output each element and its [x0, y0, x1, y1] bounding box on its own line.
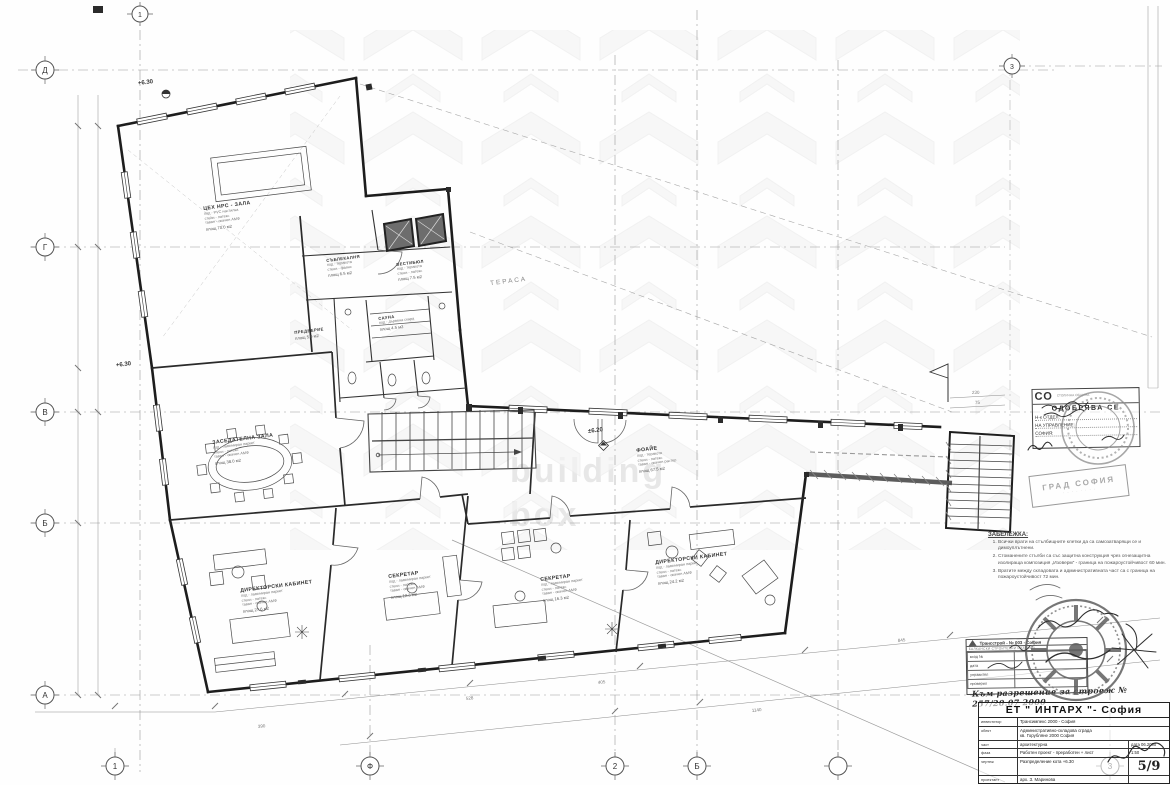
svg-text:Г: Г — [43, 243, 48, 252]
room-label-secretary-1: СЕКРЕТАР под - ламиниран паркет стени - … — [388, 569, 433, 600]
svg-text:845: 845 — [898, 637, 906, 643]
tb-value: арх. З. Маринова — [1018, 776, 1128, 784]
contractor-title: Трансстрой - № 003 - София — [980, 639, 1042, 645]
svg-text:390: 390 — [258, 723, 266, 729]
svg-text:Д: Д — [42, 66, 48, 75]
tb-date: дата 06.2000 — [1128, 741, 1169, 749]
svg-text:75: 75 — [975, 400, 981, 405]
room-label-foyer: ФОАЙЕ под - теракота стени - латекс тава… — [636, 443, 677, 473]
approval-field-1: Н-к ОТДЕЛ: — [1035, 413, 1137, 421]
svg-text:230: 230 — [972, 390, 980, 395]
approval-stamp: СО СТОЛИЧНА ОБЩИНА ОДОБРЯВА СЕ Н-к ОТДЕЛ… — [1031, 387, 1140, 449]
svg-text:3: 3 — [1010, 64, 1014, 71]
svg-text:528: 528 — [466, 695, 474, 701]
room-label-secretary-2: СЕКРЕТАР под - ламиниран паркет стени - … — [540, 572, 585, 603]
tb-value: Административно-складова сграда кв. Гору… — [1018, 727, 1169, 740]
notes-title: ЗАБЕЛЕЖКА: — [988, 532, 1166, 538]
svg-text:2: 2 — [613, 762, 618, 771]
tb-scale: 1:50 — [1128, 749, 1169, 757]
room-label-vestibule: ВЕСТИБЮЛ под - теракота стени - латекс п… — [396, 259, 426, 282]
tb-label: обект — [979, 727, 1018, 740]
svg-text:Ф: Ф — [367, 762, 373, 771]
approval-title: ОДОБРЯВА СЕ — [1033, 404, 1139, 413]
approval-field-2: НА УПРАВЛЕНИЕ: — [1035, 421, 1137, 429]
tb-value: Работен проект - преработен + лист — [1018, 749, 1128, 757]
tb-sheet-number: 5/9 — [1128, 758, 1169, 775]
room-label-locker: СЪБЛЕКАЛНЯ под - теракота стени - фаянс … — [326, 254, 362, 278]
svg-text:Б: Б — [694, 762, 699, 771]
note-item: Вратите между складовата и административ… — [998, 569, 1166, 581]
tb-value: архитектурна — [1018, 741, 1128, 749]
drawing-sheet: building box — [0, 0, 1170, 785]
tb-signature-cell — [1128, 776, 1169, 784]
note-item: Всички врати на стълбищните клетки да са… — [998, 540, 1166, 552]
tb-label: проектант — [979, 776, 1018, 784]
company-name: ЕТ " ИНТАРХ "- София — [979, 703, 1169, 718]
municipality-logo-caption: СТОЛИЧНА ОБЩИНА — [1057, 394, 1090, 398]
note-item: Стоманените стълби са със защитна констр… — [998, 554, 1166, 566]
svg-text:1140: 1140 — [752, 707, 763, 713]
approval-field-3: СОФИЯ: — [1035, 429, 1137, 437]
tb-label: чертеж — [979, 758, 1018, 775]
municipality-logo: СО — [1035, 391, 1053, 403]
contractor-logo-icon — [969, 640, 977, 646]
tb-label: фаза — [979, 749, 1018, 757]
watermark-pattern — [290, 30, 1020, 550]
svg-text:405: 405 — [598, 679, 606, 685]
tb-label: част — [979, 741, 1018, 749]
svg-text:1: 1 — [113, 762, 118, 771]
tb-label: инвеститор — [979, 718, 1018, 726]
svg-text:В: В — [42, 408, 47, 417]
notes-block: ЗАБЕЛЕЖКА: Всички врати на стълбищните к… — [988, 532, 1166, 583]
tb-value: Трансимпекс 2000 - София — [1018, 718, 1169, 726]
svg-text:1: 1 — [138, 12, 142, 19]
tb-value: Разпределение кота +6.30 — [1018, 758, 1128, 775]
title-block: ЕТ " ИНТАРХ "- София инвеститор Трансимп… — [978, 702, 1170, 784]
svg-text:А: А — [42, 691, 48, 700]
svg-text:Б: Б — [42, 519, 47, 528]
